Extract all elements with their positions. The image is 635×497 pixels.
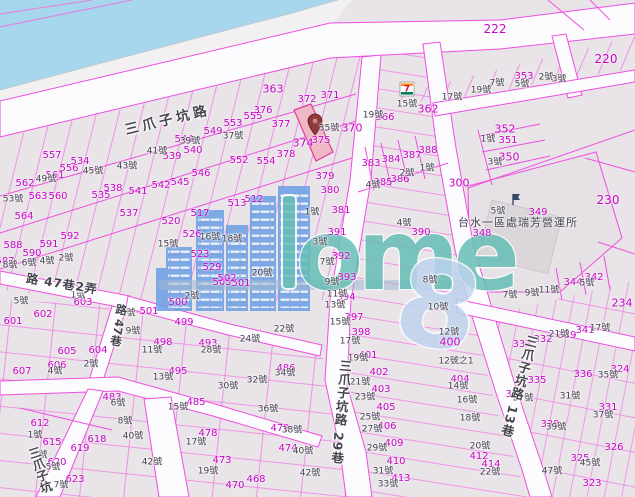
svg-text:7: 7 <box>404 85 410 95</box>
map-canvas[interactable]: ome 8 7 55755656153456256356056453553854… <box>0 0 635 497</box>
map-base: ome 8 7 <box>0 0 635 497</box>
poi-label: 台水一區處瑞芳營運所 <box>458 214 578 230</box>
seven-eleven-icon[interactable]: 7 <box>400 82 414 96</box>
